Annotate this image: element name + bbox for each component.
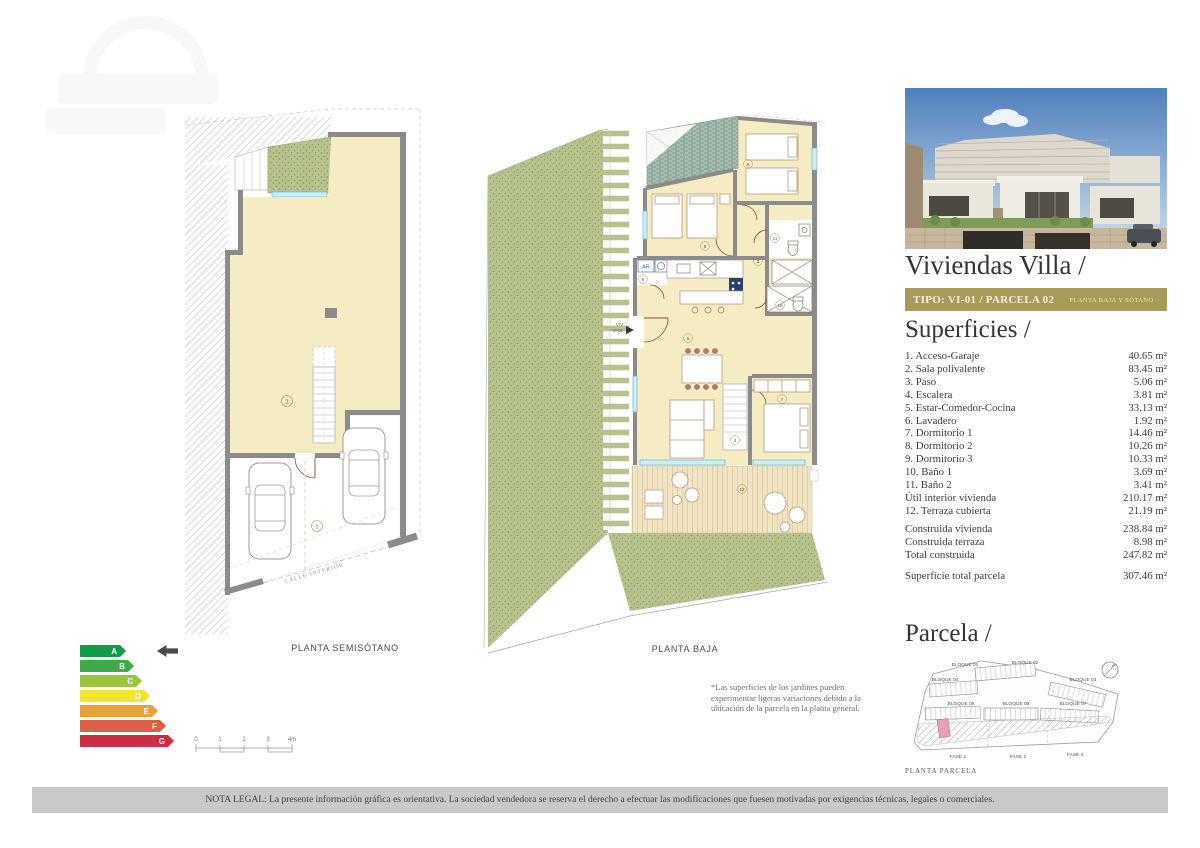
superficies-row: 12. Terraza cubierta 21.19 m² — [905, 505, 1167, 518]
parcel-total-row: Superficie total parcela 307.46 m² — [905, 570, 1167, 583]
svg-text:3: 3 — [266, 737, 270, 743]
fase-label: FASE 2 — [1010, 754, 1027, 760]
svg-text:0: 0 — [194, 737, 198, 743]
row-label: Total construida — [905, 549, 975, 562]
bloque-label: BLOQUE 03 — [1070, 677, 1097, 683]
energy-letter: B — [119, 662, 125, 671]
row-label: 6. Lavadero — [905, 415, 957, 428]
energy-bar-f: F — [80, 720, 166, 732]
row-value: 3.69 m² — [1134, 466, 1167, 479]
bloque-label: BLOQUE 05 — [948, 701, 975, 707]
superficies-row: 8. Dormitorio 2 10.26 m² — [905, 440, 1167, 453]
row-value: 40.65 m² — [1128, 350, 1167, 363]
parcela-caption: PLANTA PARCELA — [905, 767, 977, 775]
svg-text:1: 1 — [218, 737, 222, 743]
floorplan-semisotano: 2 1 CALLE INTERIOR — [185, 95, 440, 640]
superficies-row: 11. Baño 2 3.41 m² — [905, 479, 1167, 492]
watermark-shape — [83, 16, 209, 81]
row-value: 33.13 m² — [1128, 402, 1167, 415]
row-label: 8. Dormitorio 2 — [905, 440, 972, 453]
row-value: 8.98 m² — [1134, 536, 1167, 549]
row-value: 307.46 m² — [1123, 570, 1167, 583]
plan-label-baja: PLANTA BAJA — [600, 644, 770, 654]
row-label: 3. Paso — [905, 376, 936, 389]
energy-letter: D — [135, 692, 141, 701]
row-value: 21.19 m² — [1128, 505, 1167, 518]
type-sublabel: PLANTA BAJA Y SÓTANO — [1069, 295, 1153, 304]
bloque-label: BLOQUE 06 — [1003, 701, 1030, 707]
svg-text:11: 11 — [773, 236, 778, 241]
superficies-row: 10. Baño 1 3.69 m² — [905, 466, 1167, 479]
bloque-label: BLOQUE 07 — [1060, 701, 1087, 707]
svg-text:1: 1 — [315, 524, 318, 531]
superficies-row: 6. Lavadero 1.92 m² — [905, 415, 1167, 428]
row-label: 5. Estar-Comedor-Cocina — [905, 402, 1016, 415]
fase-label: FASE 3 — [1067, 752, 1084, 758]
legal-note: NOTA LEGAL: La presente información gráf… — [32, 787, 1168, 813]
svg-text:9: 9 — [704, 244, 707, 249]
row-label: 2. Sala polivalente — [905, 363, 985, 376]
column — [325, 308, 337, 318]
energy-letter: E — [144, 707, 149, 716]
row-value: 247.82 m² — [1123, 549, 1167, 562]
parcel-total: Superficie total parcela 307.46 m² — [905, 570, 1167, 583]
type-banner: TIPO: VI-01 / PARCELA 02 PLANTA BAJA Y S… — [905, 288, 1167, 311]
superficies-totals: Construida vivienda 238.84 m² Construida… — [905, 523, 1167, 562]
plan-sheet: 2 1 CALLE INTERIOR — [0, 0, 1200, 848]
scale-bar: 0 1 2 3 4m — [192, 732, 300, 760]
energy-bar-c: C — [80, 675, 142, 687]
energy-letter: F — [152, 722, 157, 731]
row-label: 7. Dormitorio 1 — [905, 427, 972, 440]
energy-bar-a: A — [80, 645, 126, 657]
superficies-row: 1. Acceso-Garaje 40.65 m² — [905, 350, 1167, 363]
row-value: 3.41 m² — [1134, 479, 1167, 492]
row-label: 12. Terraza cubierta — [905, 505, 991, 518]
energy-letter: A — [111, 647, 117, 656]
svg-text:5: 5 — [687, 336, 690, 341]
superficies-row: 5. Estar-Comedor-Cocina 33.13 m² — [905, 402, 1167, 415]
north-compass-icon — [1102, 662, 1118, 678]
energy-letter: G — [159, 737, 165, 746]
car — [246, 463, 294, 559]
superficies-row: 2. Sala polivalente 83.45 m² — [905, 363, 1167, 376]
window — [272, 192, 327, 197]
svg-text:7: 7 — [781, 397, 784, 402]
garden-patch — [268, 137, 331, 193]
parcela-site-map: BLOQUE 01 BLOQUE 02 BLOQUE 03 BLOQUE 04 … — [903, 654, 1138, 766]
watermark-shape — [46, 108, 166, 134]
car — [340, 428, 388, 524]
svg-text:AR: AR — [642, 265, 650, 271]
energy-bar-g: G — [80, 735, 174, 747]
bloque-label: BLOQUE 04 — [932, 677, 959, 683]
terrace-deck — [632, 466, 818, 533]
svg-text:VI-01: VI-01 — [613, 328, 624, 333]
energy-bar-d: D — [80, 690, 150, 702]
bloque-label: BLOQUE 02 — [1012, 660, 1039, 666]
row-label: Superficie total parcela — [905, 570, 1005, 583]
superficies-row: 3. Paso 5.06 m² — [905, 376, 1167, 389]
row-value: 83.45 m² — [1128, 363, 1167, 376]
garden-variation-note: *Las superficies de los jardines pueden … — [711, 682, 861, 714]
superficies-row: 7. Dormitorio 1 14.46 m² — [905, 427, 1167, 440]
row-value: 14.46 m² — [1128, 427, 1167, 440]
row-label: 10. Baño 1 — [905, 466, 952, 479]
row-value: 238.84 m² — [1123, 523, 1167, 536]
page-title: Viviendas Villa / — [905, 250, 1167, 281]
svg-text:12: 12 — [739, 487, 745, 492]
svg-text:6: 6 — [642, 277, 645, 282]
superficies-row: Útil interior vivienda 210.17 m² — [905, 492, 1167, 505]
svg-text:8: 8 — [747, 162, 750, 167]
row-label: 1. Acceso-Garaje — [905, 350, 979, 363]
energy-bar-e: E — [80, 705, 158, 717]
row-label: Construida terraza — [905, 536, 984, 549]
energy-bar-b: B — [80, 660, 134, 672]
parcela-highlight — [937, 718, 950, 737]
superficies-total-row: Total construida 247.82 m² — [905, 549, 1167, 562]
row-value: 10.33 m² — [1128, 453, 1167, 466]
parcela-heading: Parcela / — [905, 620, 1167, 648]
superficies-heading: Superficies / — [905, 316, 1167, 344]
superficies-total-row: Construida terraza 8.98 m² — [905, 536, 1167, 549]
bloque-label: BLOQUE 01 — [952, 662, 979, 668]
svg-text:10: 10 — [777, 303, 783, 308]
row-value: 3.81 m² — [1134, 389, 1167, 402]
svg-text:4: 4 — [734, 438, 737, 443]
row-label: Útil interior vivienda — [905, 492, 996, 505]
superficies-table: 1. Acceso-Garaje 40.65 m² 2. Sala poliva… — [905, 350, 1167, 518]
laundry: AR — [638, 260, 667, 272]
energy-letter: C — [127, 677, 133, 686]
stairs — [313, 347, 335, 443]
row-label: 4. Escalera — [905, 389, 952, 402]
row-label: 9. Dormitorio 3 — [905, 453, 972, 466]
room-label-escalera: 4 — [731, 436, 740, 445]
fase-label: FASE 1 — [950, 754, 967, 760]
type-label: TIPO: VI-01 / PARCELA 02 — [913, 294, 1054, 306]
superficies-row: 9. Dormitorio 3 10.33 m² — [905, 453, 1167, 466]
svg-text:2: 2 — [285, 399, 288, 406]
row-value: 1.92 m² — [1134, 415, 1167, 428]
svg-text:2: 2 — [242, 737, 246, 743]
svg-text:3: 3 — [757, 259, 760, 264]
svg-text:VIV: VIV — [616, 322, 623, 327]
row-label: Construida vivienda — [905, 523, 992, 536]
hero-render-image — [905, 88, 1167, 249]
superficies-row: 4. Escalera 3.81 m² — [905, 389, 1167, 402]
svg-text:4m: 4m — [288, 737, 296, 743]
superficies-total-row: Construida vivienda 238.84 m² — [905, 523, 1167, 536]
energy-rating-arrow — [157, 645, 178, 657]
row-value: 10.26 m² — [1128, 440, 1167, 453]
floorplan-baja: VIV VI-01 — [480, 108, 875, 663]
row-label: 11. Baño 2 — [905, 479, 952, 492]
row-value: 210.17 m² — [1123, 492, 1167, 505]
row-value: 5.06 m² — [1134, 376, 1167, 389]
